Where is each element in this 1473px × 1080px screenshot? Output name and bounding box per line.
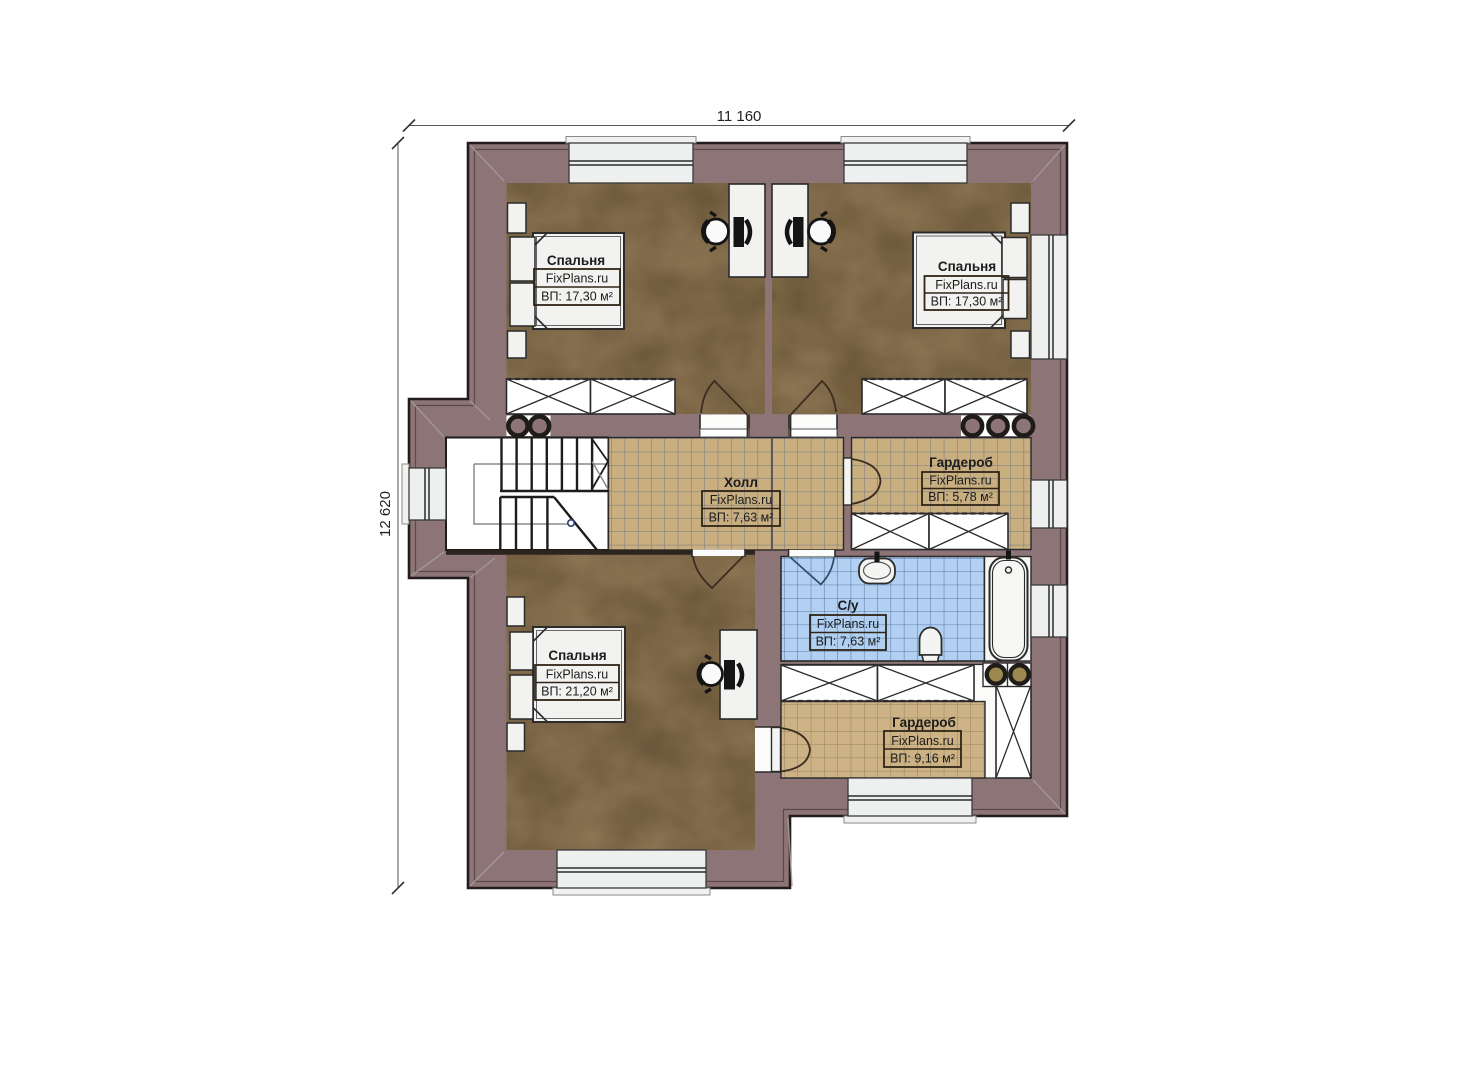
svg-text:ВП: 7,63 м²: ВП: 7,63 м²	[816, 635, 881, 649]
svg-text:Гардероб: Гардероб	[892, 715, 956, 730]
svg-text:FixPlans.ru: FixPlans.ru	[710, 493, 773, 507]
svg-text:ВП: 21,20 м²: ВП: 21,20 м²	[541, 685, 613, 699]
svg-text:ВП: 7,63 м²: ВП: 7,63 м²	[709, 511, 774, 525]
svg-text:11 160: 11 160	[717, 108, 762, 125]
svg-text:ВП: 9,16 м²: ВП: 9,16 м²	[890, 752, 955, 766]
svg-text:FixPlans.ru: FixPlans.ru	[817, 617, 880, 631]
svg-text:FixPlans.ru: FixPlans.ru	[546, 272, 609, 286]
svg-text:Спальня: Спальня	[938, 259, 996, 274]
svg-text:Спальня: Спальня	[548, 648, 606, 663]
svg-text:FixPlans.ru: FixPlans.ru	[891, 734, 954, 748]
svg-text:ВП: 17,30 м²: ВП: 17,30 м²	[541, 290, 613, 304]
svg-text:ВП: 17,30 м²: ВП: 17,30 м²	[931, 295, 1003, 309]
svg-text:Холл: Холл	[724, 475, 758, 490]
svg-text:FixPlans.ru: FixPlans.ru	[929, 474, 992, 488]
svg-text:Спальня: Спальня	[547, 253, 605, 268]
svg-text:FixPlans.ru: FixPlans.ru	[546, 668, 609, 682]
svg-text:ВП: 5,78 м²: ВП: 5,78 м²	[928, 490, 993, 504]
svg-text:FixPlans.ru: FixPlans.ru	[935, 278, 998, 292]
svg-text:Гардероб: Гардероб	[929, 455, 993, 470]
svg-text:С/у: С/у	[837, 598, 859, 613]
svg-text:12 620: 12 620	[377, 491, 394, 537]
